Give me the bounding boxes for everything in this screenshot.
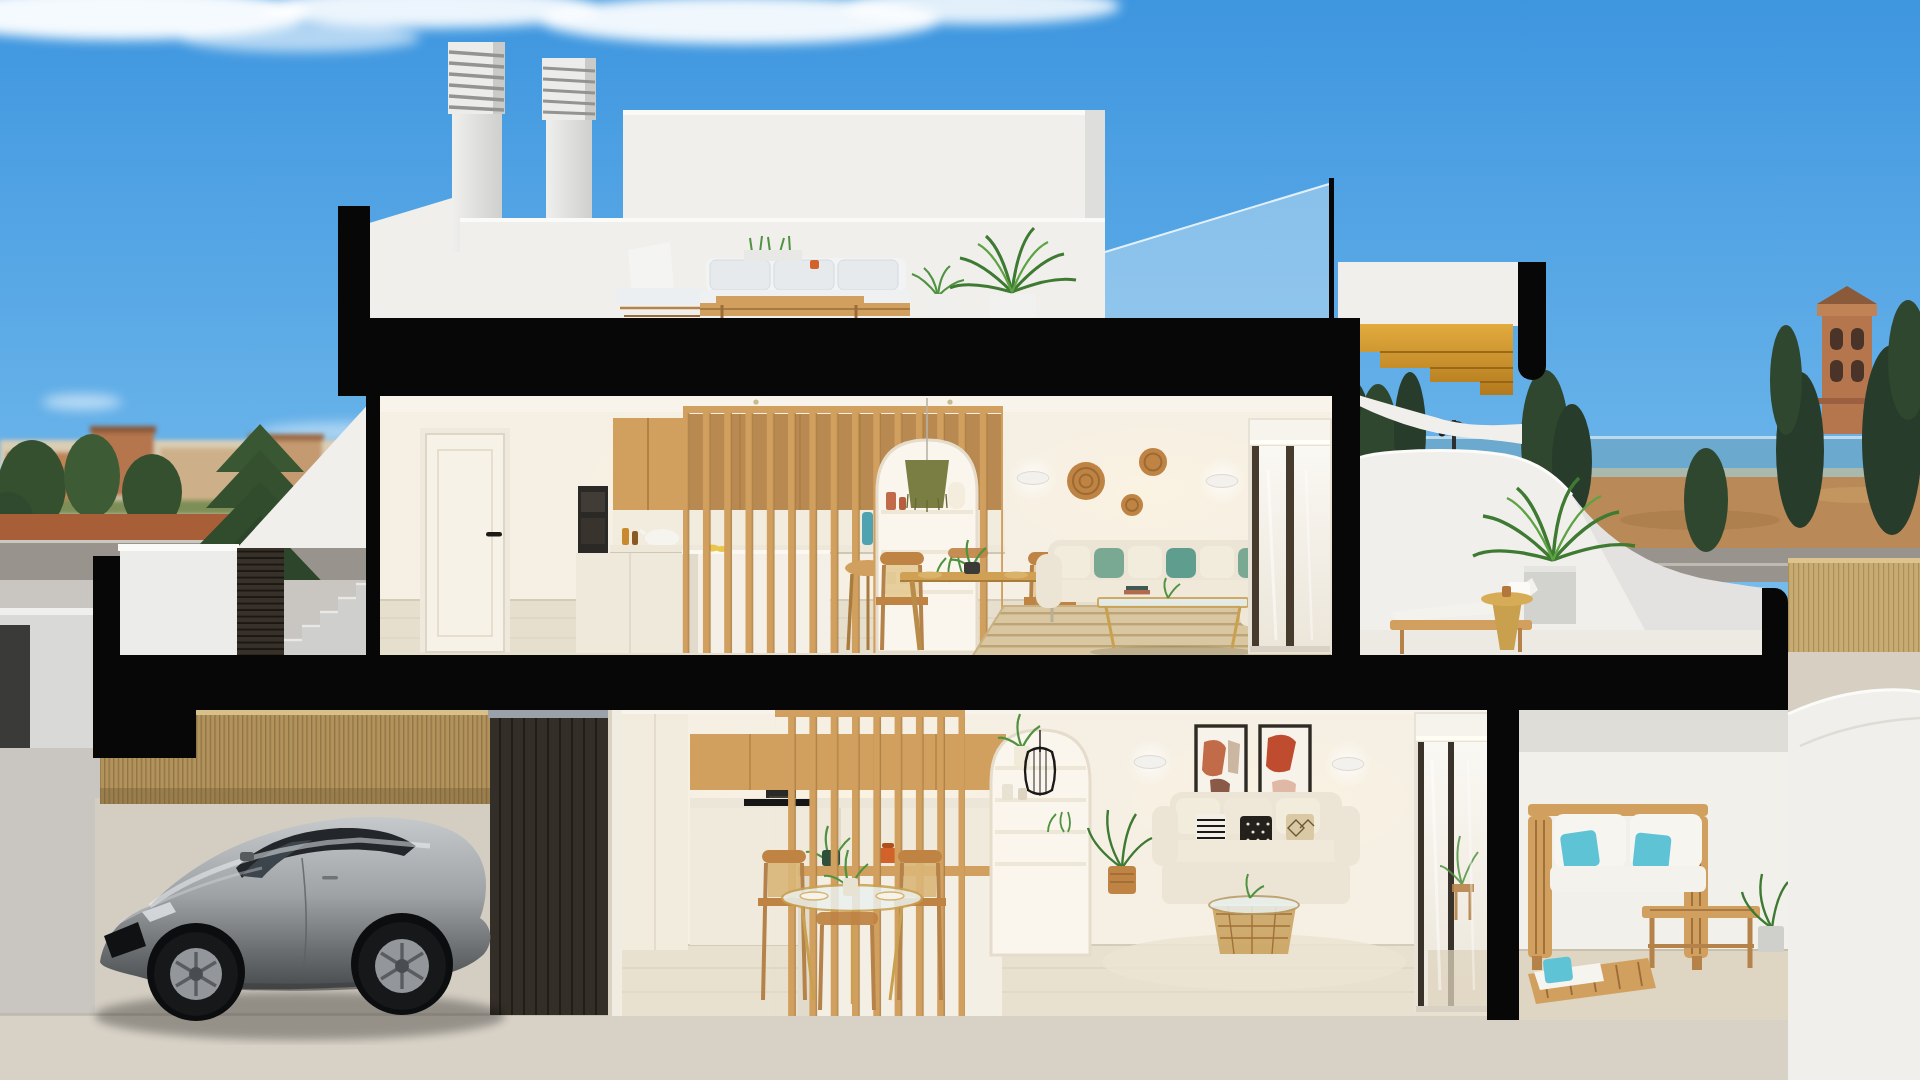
- sliding-door-upper: [1248, 418, 1332, 654]
- entry-wall: [120, 548, 237, 658]
- interior-door: [420, 428, 510, 652]
- left-garden-wall: [0, 608, 95, 748]
- cut-wall-left-edge: [366, 396, 380, 656]
- rear-wheel: [358, 922, 446, 1010]
- sofa-lower: [1152, 792, 1360, 904]
- bamboo-fence-right: [1788, 560, 1920, 652]
- curved-white-wall: [1788, 690, 1920, 1080]
- cut-column-patio: [1487, 655, 1519, 1020]
- cut-terrace-end-cap: [1762, 588, 1788, 710]
- upper-floor-interior: [380, 385, 1340, 658]
- front-wheel: [154, 932, 238, 1016]
- wall-sconce: [1126, 738, 1174, 786]
- stair-end-cap: [1518, 262, 1546, 380]
- patterned-pillow-striped: [1196, 814, 1226, 842]
- cut-roof-column-left: [338, 206, 370, 322]
- wall-sconce: [1009, 454, 1057, 502]
- wall-sconce: [1198, 457, 1246, 505]
- lower-floor-interior: [622, 700, 1492, 1016]
- cut-floor-step-left: [93, 655, 196, 758]
- cut-roof-slab: [338, 318, 1332, 396]
- sliding-door-lower: [1414, 712, 1492, 1012]
- patterned-pillow-tan: [1286, 814, 1314, 841]
- railing-post: [1329, 178, 1334, 320]
- slatted-gate: [237, 548, 284, 656]
- garage-door: [488, 708, 610, 1015]
- wall-sconce: [1324, 740, 1372, 788]
- arched-niche-lower: [991, 714, 1090, 955]
- architectural-render: Two-storey coastal townhouse — architect…: [0, 0, 1920, 1080]
- neighbour-patio: [1788, 558, 1920, 1080]
- cut-column-terrace: [1332, 318, 1360, 658]
- cross-section-scene: Two-storey coastal townhouse — architect…: [0, 0, 1920, 1080]
- terrace-floor: [1360, 630, 1762, 658]
- covered-patio: [1519, 710, 1788, 1020]
- cut-floor-slab: [93, 655, 1788, 710]
